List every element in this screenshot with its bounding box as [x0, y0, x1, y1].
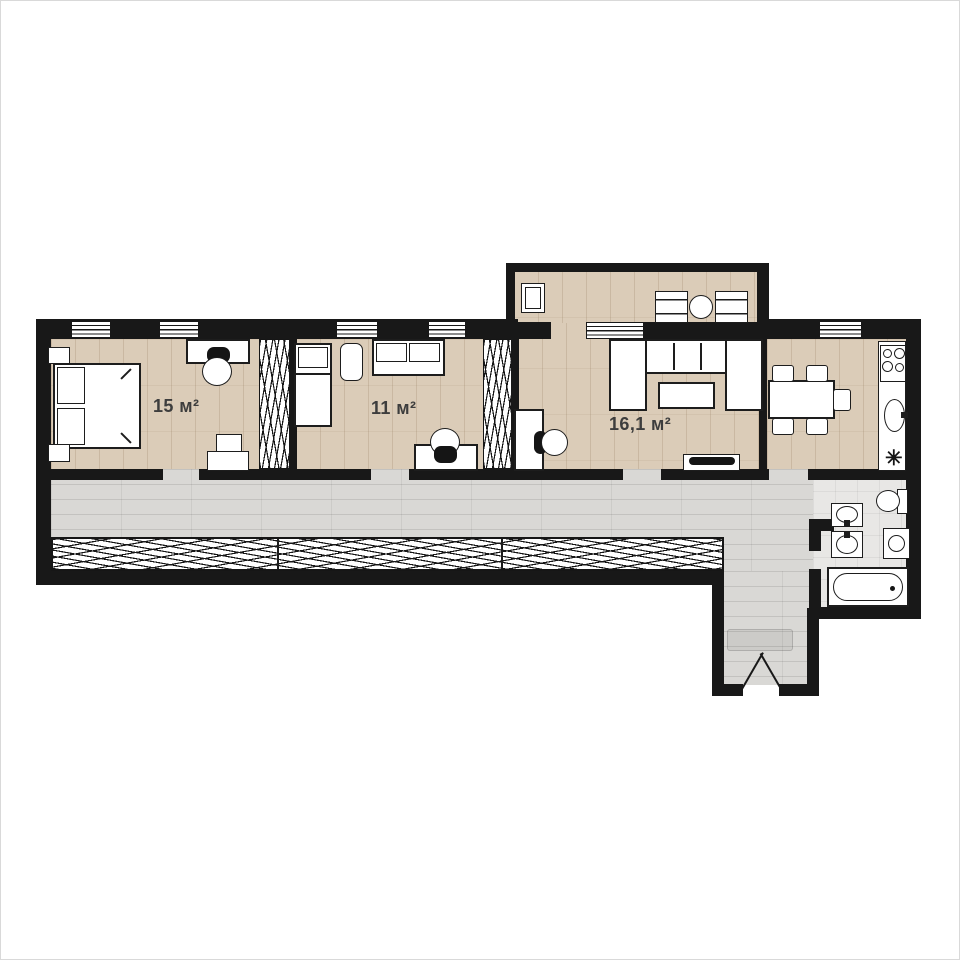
dining-chair	[806, 365, 828, 382]
toilet	[876, 490, 900, 512]
balcony-table	[689, 295, 713, 319]
wall	[36, 571, 724, 585]
office-chair	[202, 357, 232, 386]
balcony-window	[586, 322, 644, 339]
decor-frame-inner	[525, 287, 541, 309]
dining-chair	[833, 389, 851, 411]
side-table	[340, 343, 363, 381]
decor-frame	[521, 283, 545, 313]
wall	[518, 322, 551, 339]
wardrobe	[259, 339, 291, 469]
wardrobe-divider	[501, 539, 503, 569]
balcony-chair	[655, 291, 688, 323]
wall	[809, 519, 821, 551]
wall	[712, 684, 743, 696]
wall	[807, 608, 819, 696]
washing-machine-drum	[888, 535, 905, 552]
pillow	[57, 367, 85, 404]
window	[159, 321, 199, 338]
window	[819, 321, 862, 338]
nightstand	[48, 347, 70, 364]
wall	[809, 607, 921, 619]
floor-plan: 15 м² 11 м² 16,1 м² ✳	[0, 0, 960, 960]
nightstand	[48, 444, 70, 462]
dining-table	[768, 380, 835, 419]
asterisk-icon: ✳	[885, 448, 903, 469]
loveseat-cushion	[409, 343, 440, 362]
faucet	[844, 532, 850, 538]
wall	[712, 571, 724, 696]
dining-chair	[772, 365, 794, 382]
stove-burner	[883, 349, 892, 358]
sofa-cushion-seam	[700, 343, 702, 370]
doormat	[727, 629, 793, 651]
sofa-arm	[725, 339, 763, 411]
window	[71, 321, 111, 338]
bathtub-drain	[890, 586, 895, 591]
office-chair	[541, 429, 568, 456]
area-label: 15 м²	[153, 397, 199, 415]
office-chair-back	[434, 446, 457, 463]
balcony-wall	[506, 263, 515, 323]
stove-burner	[894, 348, 905, 359]
stove-burner	[882, 361, 893, 372]
dining-chair	[806, 418, 828, 435]
window	[336, 321, 378, 338]
wardrobe-divider	[277, 539, 279, 569]
dresser	[207, 451, 249, 471]
faucet	[844, 520, 850, 526]
area-label: 16,1 м²	[609, 415, 671, 433]
stove-burner	[895, 363, 904, 372]
wall	[809, 569, 821, 619]
hallway-floor	[712, 571, 813, 685]
tv	[689, 457, 735, 465]
sofa-arm	[609, 339, 647, 411]
pillow	[298, 347, 328, 368]
bathtub	[827, 567, 909, 607]
corner-sofa	[645, 339, 727, 374]
balcony-chair	[715, 291, 748, 323]
blanket-line	[296, 373, 330, 375]
balcony-wall	[506, 263, 769, 272]
window	[428, 321, 466, 338]
wall	[644, 322, 759, 339]
dining-chair	[772, 418, 794, 435]
wardrobe	[483, 339, 514, 469]
area-label: 11 м²	[371, 399, 416, 417]
loveseat-cushion	[376, 343, 407, 362]
dresser	[216, 434, 242, 452]
hallway-wardrobe	[51, 537, 724, 571]
pillow	[57, 408, 85, 445]
coffee-table	[658, 382, 715, 409]
faucet	[901, 412, 908, 418]
wall	[36, 469, 163, 480]
sofa-cushion-seam	[673, 343, 675, 370]
